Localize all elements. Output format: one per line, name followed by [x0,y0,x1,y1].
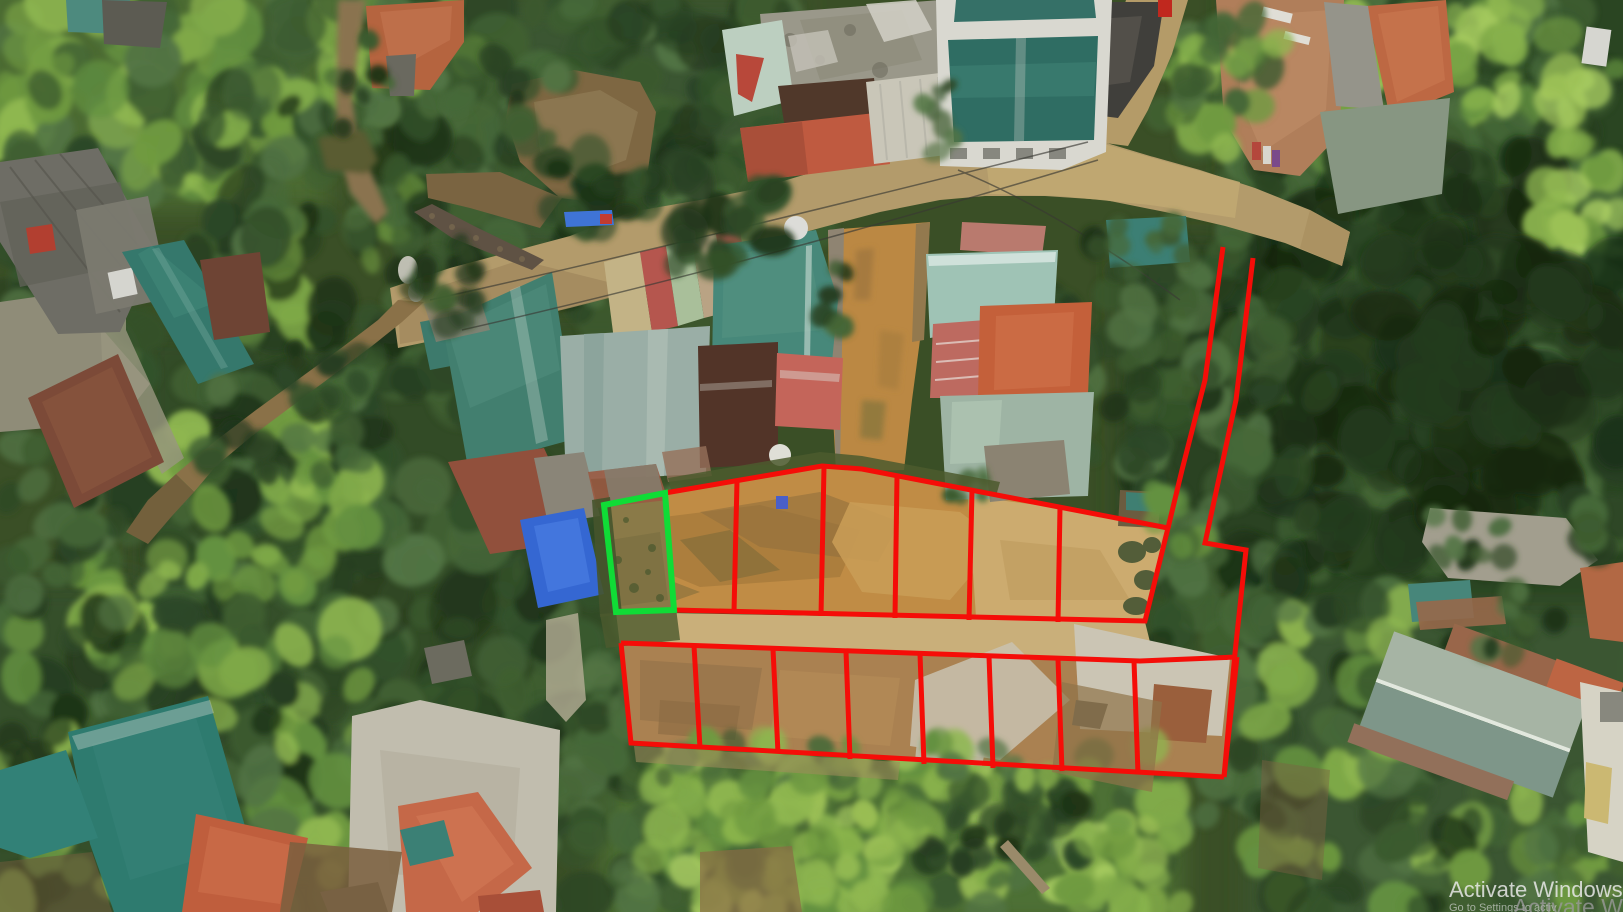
svg-text:Activate Win: Activate Win [1513,894,1623,912]
